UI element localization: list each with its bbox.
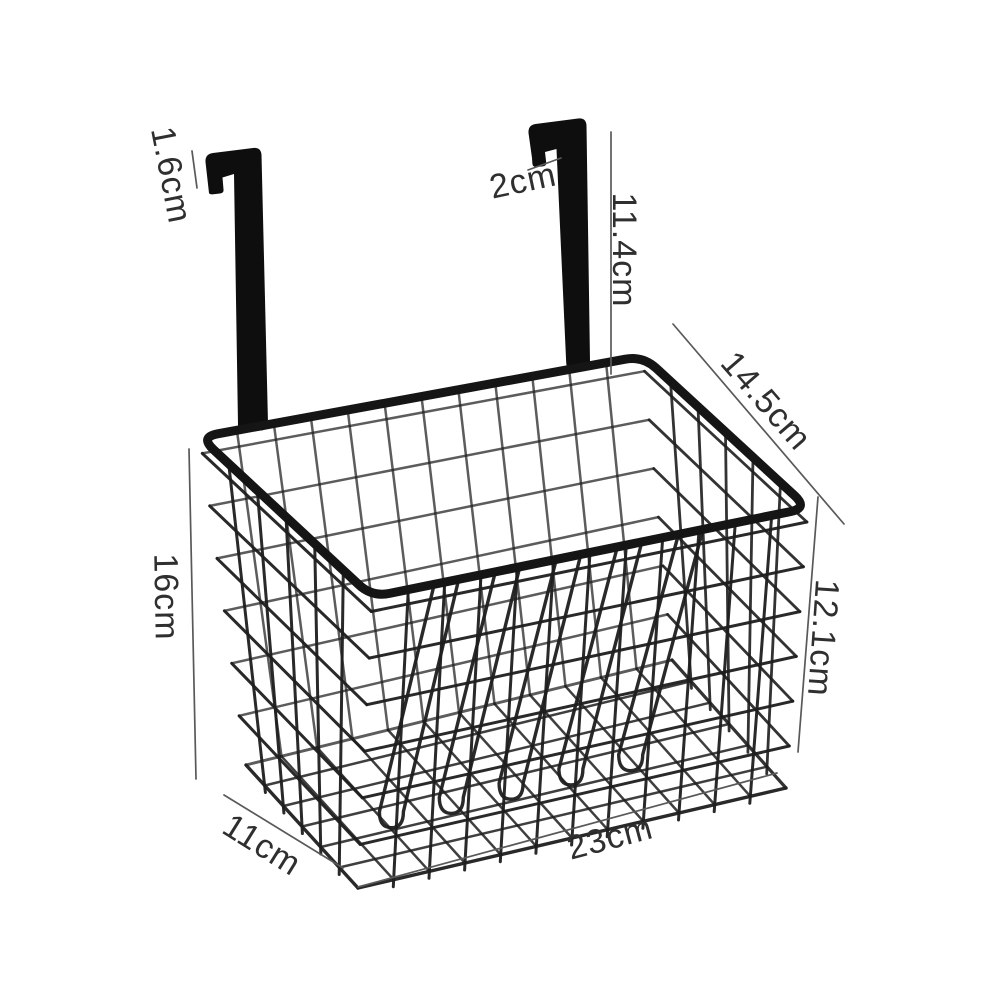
back-wall-horizontal-wire [202,371,644,453]
right-over-door-hook [528,118,590,369]
back-wall-horizontal-wire [239,614,667,715]
left-wall-horizontal-wire [210,506,369,658]
dimension-label-2cm: 2cm [486,155,560,206]
front-wall-horizontal-wire [371,522,807,612]
dimension-label-23cm: 23cm [563,808,657,867]
basket-diagram-svg: 1.6cm2cm11.4cm14.5cm12.1cm16cm11cm23cm [0,0,1000,1000]
left-wall-vertical-wire [339,570,343,874]
dimension-line-16cm [189,449,196,779]
right-wall-vertical-wire [748,457,753,752]
basket-top-rim [208,359,801,595]
left-over-door-hook [205,148,268,432]
product-dimension-diagram: 1.6cm2cm11.4cm14.5cm12.1cm16cm11cm23cm [0,0,1000,1000]
dimension-label-11-4cm: 11.4cm [605,193,643,308]
dimension-label-1-6cm: 1.6cm [143,123,199,226]
dimension-label-12-1cm: 12.1cm [800,578,846,698]
dimension-label-16cm: 16cm [146,553,186,641]
